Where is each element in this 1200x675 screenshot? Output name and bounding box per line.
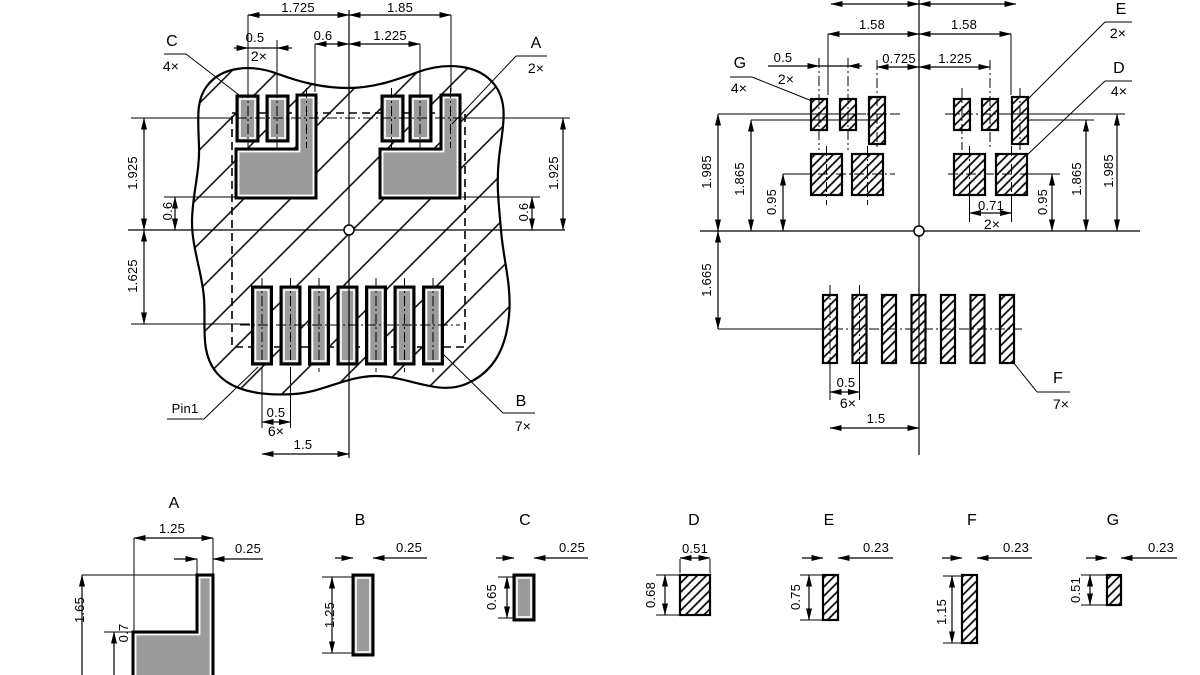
callout-c-count: 4× xyxy=(163,59,179,73)
view2-origin-marker xyxy=(914,226,924,236)
dim-v1-pad-pitch-count: 2× xyxy=(251,49,267,63)
dim-v2-top-right-span: 1.58 xyxy=(951,18,977,32)
detail-f-height: 1.15 xyxy=(935,599,949,625)
detail-g-height: 0.51 xyxy=(1069,577,1083,603)
view1-origin-marker xyxy=(344,225,354,235)
detail-a-stub-width: 0.25 xyxy=(235,542,261,556)
detail-b-label: B xyxy=(355,514,366,528)
detail-a-width: 1.25 xyxy=(159,522,185,536)
callout-f: F xyxy=(1053,372,1063,386)
callout-b: B xyxy=(516,395,527,409)
callout-a-count: 2× xyxy=(528,61,544,75)
callout-a: A xyxy=(531,37,542,51)
detail-e-width: 0.23 xyxy=(863,541,889,555)
dim-v2-inner-span: 1.225 xyxy=(938,52,972,66)
detail-f-width: 0.23 xyxy=(1003,541,1029,555)
dim-v2-pad-pitch: 0.5 xyxy=(774,51,793,65)
callout-d: D xyxy=(1113,62,1125,76)
detail-d-width: 0.51 xyxy=(682,542,708,556)
detail-a-label: A xyxy=(169,497,180,511)
dim-v1-bottom-pitch-count: 6× xyxy=(268,424,284,438)
dim-v2-center-offset: 0.725 xyxy=(882,52,916,66)
dim-v1-center-offset: 0.6 xyxy=(314,29,333,43)
detail-c-label: C xyxy=(519,514,531,528)
detail-d-label: D xyxy=(688,514,700,528)
dim-v2-left-inner: 1.865 xyxy=(733,162,747,196)
callout-g-count: 4× xyxy=(731,81,747,95)
detail-c-height: 0.65 xyxy=(485,584,499,610)
callout-c: C xyxy=(166,35,178,49)
dim-v2-pad-pitch-count: 2× xyxy=(778,72,794,86)
view2-dimensions xyxy=(718,4,1117,428)
detail-a-height: 1.65 xyxy=(73,597,87,623)
dim-v2-right-step: 0.95 xyxy=(1036,189,1050,215)
detail-d-height: 0.68 xyxy=(644,582,658,608)
dim-v2-bottom-pitch: 0.5 xyxy=(837,376,856,390)
dim-v2-left-step: 0.95 xyxy=(765,189,779,215)
callout-e-count: 2× xyxy=(1110,26,1126,40)
dim-v1-right-upper: 1.925 xyxy=(547,156,561,190)
detail-f-label: F xyxy=(967,514,977,528)
callout-d-count: 4× xyxy=(1111,84,1127,98)
dim-v2-left-outer: 1.985 xyxy=(700,155,714,189)
dim-v2-bottom-pitch-count: 6× xyxy=(840,396,856,410)
dim-v2-bottom-span: 1.5 xyxy=(867,412,886,426)
dim-v1-left-lower: 1.625 xyxy=(126,259,140,293)
detail-a-lower-height: 0.7 xyxy=(117,624,131,643)
callout-f-count: 7× xyxy=(1053,397,1069,411)
dim-v1-left-upper: 1.925 xyxy=(126,156,140,190)
dim-v2-left-lower: 1.665 xyxy=(700,263,714,297)
detail-e-height: 0.75 xyxy=(789,584,803,610)
dim-v1-left-step: 0.6 xyxy=(161,202,175,221)
dim-v2-right-outer: 1.985 xyxy=(1102,154,1116,188)
detail-b-height: 1.25 xyxy=(323,602,337,628)
dim-v2-top-left-span: 1.58 xyxy=(859,18,885,32)
detail-c-width: 0.25 xyxy=(559,541,585,555)
callout-b-count: 7× xyxy=(515,419,531,433)
dim-v1-pad-pitch: 0.5 xyxy=(246,31,265,45)
detail-dimensions xyxy=(82,538,1177,675)
detail-e-label: E xyxy=(824,514,835,528)
callout-pin1: Pin1 xyxy=(172,402,199,416)
dim-v1-bottom-pitch: 0.5 xyxy=(267,406,286,420)
callout-e: E xyxy=(1116,3,1127,17)
dim-v1-top-left-span: 1.725 xyxy=(281,1,315,15)
dim-v1-right-step: 0.6 xyxy=(517,203,531,222)
detail-g-width: 0.23 xyxy=(1148,541,1174,555)
dim-v2-right-pair: 0.71 xyxy=(978,199,1004,213)
dim-v1-top-right-span: 1.85 xyxy=(387,1,413,15)
detail-g-label: G xyxy=(1107,514,1120,528)
dim-v2-right-inner: 1.865 xyxy=(1070,162,1084,196)
drawing-linework xyxy=(0,0,1200,675)
dim-v1-bottom-span: 1.5 xyxy=(294,438,313,452)
dim-v1-inner-span: 1.225 xyxy=(373,29,407,43)
dim-v2-right-pair-count: 2× xyxy=(984,217,1000,231)
land-pattern-drawing: 1.725 1.85 0.5 2× 0.6 1.225 C 4× A 2× 1.… xyxy=(0,0,1200,675)
detail-b-width: 0.25 xyxy=(396,541,422,555)
detail-pads xyxy=(133,575,1121,675)
callout-g: G xyxy=(734,57,747,71)
